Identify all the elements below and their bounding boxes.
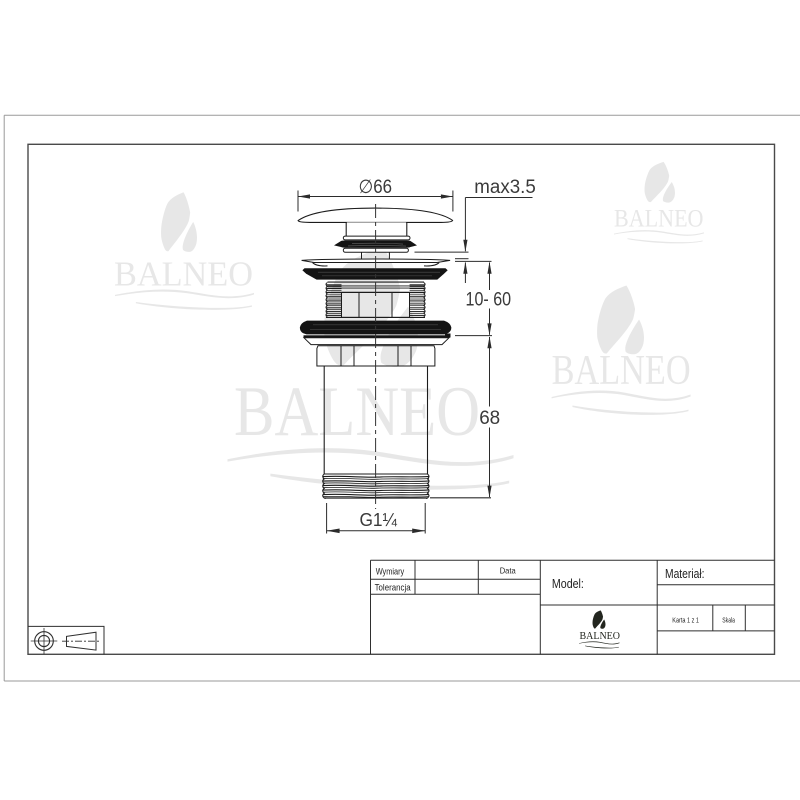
svg-text:BALNEO: BALNEO [552,348,691,394]
svg-text:Tolerancja: Tolerancja [375,583,411,593]
svg-text:Karta 1 z 1: Karta 1 z 1 [672,615,699,624]
svg-text:BALNEO: BALNEO [580,630,621,642]
svg-text:10- 60: 10- 60 [466,290,512,311]
svg-text:BALNEO: BALNEO [114,255,253,294]
svg-text:BALNEO: BALNEO [234,373,480,451]
svg-text:BALNEO: BALNEO [614,206,704,233]
svg-text:Materiał:: Materiał: [665,567,705,581]
svg-text:Skala: Skala [722,615,735,624]
svg-text:∅66: ∅66 [359,177,393,198]
svg-text:G1¼: G1¼ [359,509,397,530]
svg-text:Wymiary: Wymiary [376,567,405,577]
svg-text:Model:: Model: [552,577,584,591]
svg-text:Data: Data [500,566,516,576]
svg-text:68: 68 [479,408,500,429]
svg-text:max3.5: max3.5 [474,177,536,198]
